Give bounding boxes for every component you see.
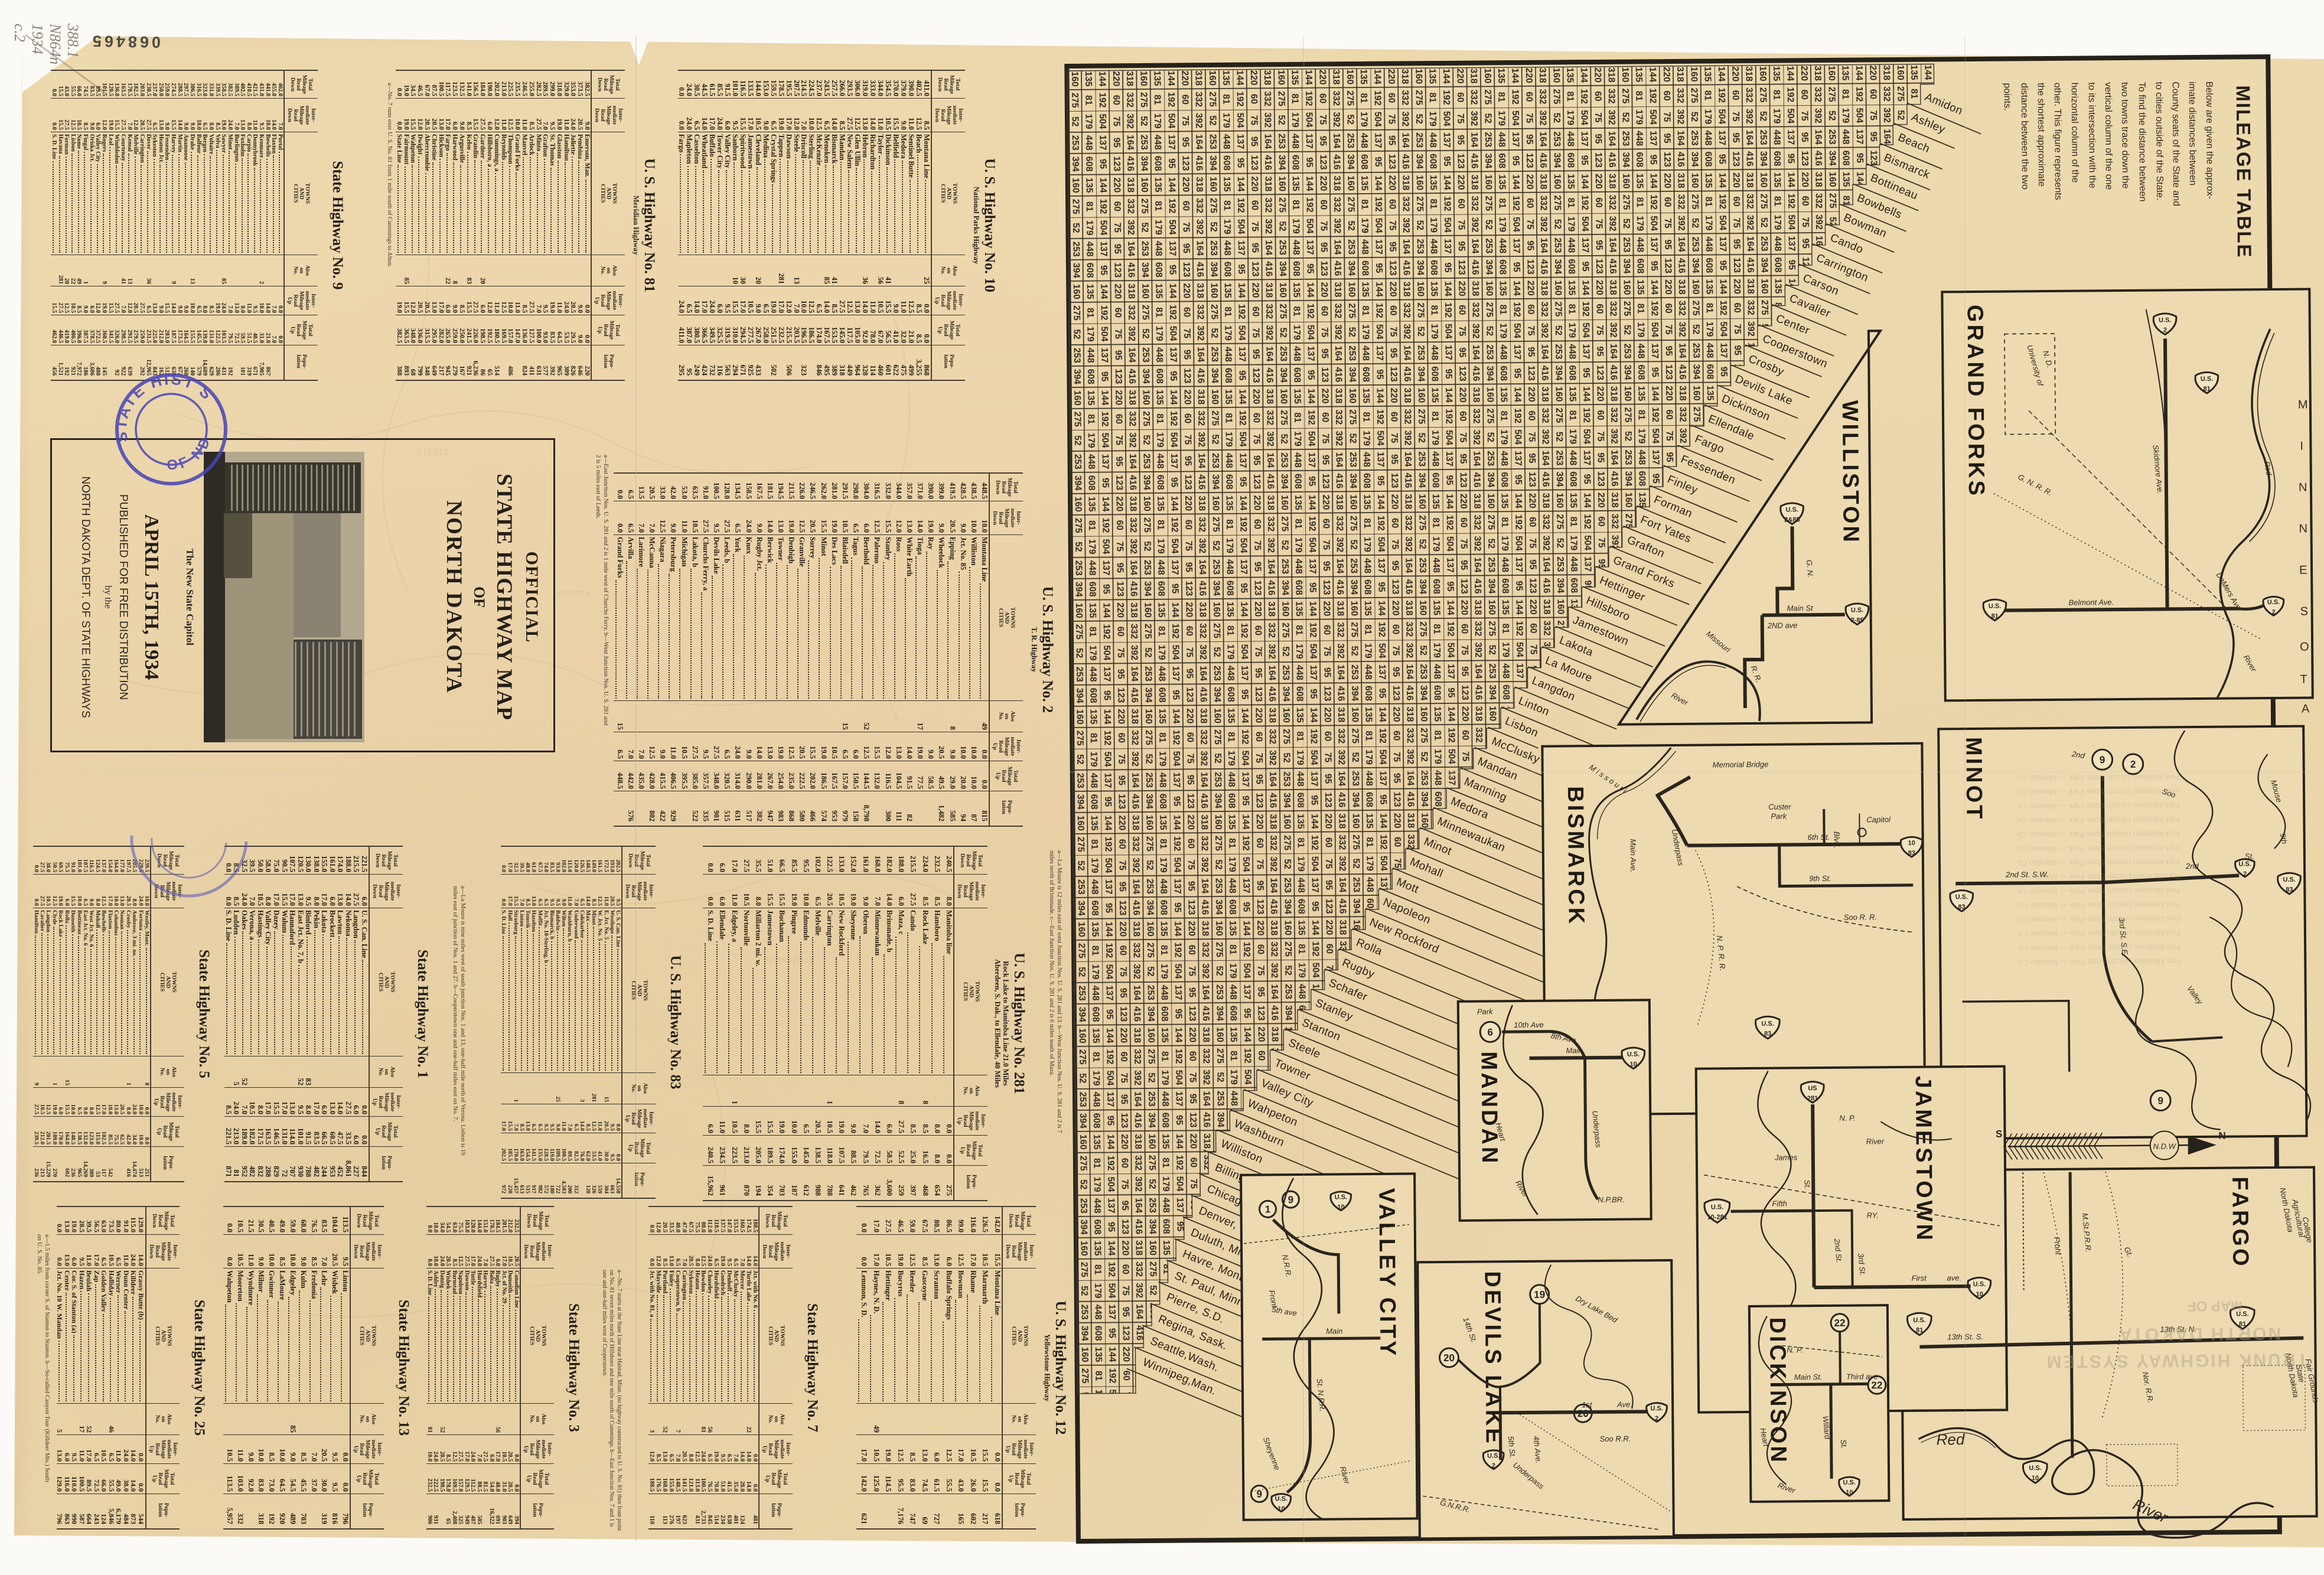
svg-text:U.S.: U.S. xyxy=(2283,876,2295,883)
svg-text:Fort Abraham Lincoln State Par: Fort Abraham Lincoln State Park — Mandan… xyxy=(2015,886,2180,896)
svg-text:to its intersection with the: to its intersection with the xyxy=(2087,82,2097,188)
svg-text:81: 81 xyxy=(1991,613,1999,620)
svg-text:20: 20 xyxy=(1443,1352,1455,1364)
svg-text:N. P.: N. P. xyxy=(1839,1114,1855,1123)
svg-text:N: N xyxy=(2218,1130,2225,1142)
svg-text:Soo R.R.: Soo R.R. xyxy=(1600,1434,1631,1443)
svg-text:M: M xyxy=(2298,399,2309,412)
svg-text:the shortest approximate: the shortest approximate xyxy=(2036,83,2046,187)
svg-text:6th St.: 6th St. xyxy=(1808,833,1830,842)
svg-text:TRUNK HIGHWAY SYSTEM: TRUNK HIGHWAY SYSTEM xyxy=(2045,1350,2307,1371)
svg-text:Fort Abraham Lincoln State Par: Fort Abraham Lincoln State Park — Mandan… xyxy=(2016,914,2180,924)
svg-text:U.S.: U.S. xyxy=(2029,1465,2041,1472)
svg-text:Front: Front xyxy=(2052,1237,2063,1256)
svg-text:I: I xyxy=(2300,440,2305,453)
svg-text:Fort Abraham Lincoln State Par: Fort Abraham Lincoln State Park — Mandan… xyxy=(2015,843,2180,853)
svg-text:9: 9 xyxy=(1288,1194,1294,1205)
svg-text:Main: Main xyxy=(1566,1046,1582,1055)
svg-text:Minot: Minot xyxy=(1422,836,1453,858)
svg-text:Fort Abraham Lincoln State Par: Fort Abraham Lincoln State Park — Mandan… xyxy=(2015,829,2180,839)
svg-text:Amidon: Amidon xyxy=(1923,91,1964,118)
svg-text:to cities outside of the State: to cities outside of the State. xyxy=(2154,81,2165,200)
svg-text:Fort Abraham Lincoln State Par: Fort Abraham Lincoln State Park — Mandan… xyxy=(2016,943,2180,953)
svg-text:U.S.: U.S. xyxy=(1761,1020,1774,1028)
svg-text:6: 6 xyxy=(1487,1026,1493,1038)
svg-text:St.: St. xyxy=(2245,852,2254,860)
svg-text:22: 22 xyxy=(1834,1318,1846,1329)
svg-text:horizontal column of the: horizontal column of the xyxy=(2069,83,2080,183)
svg-text:Main: Main xyxy=(1326,1326,1342,1335)
svg-text:N. P.: N. P. xyxy=(1787,1345,1803,1354)
svg-text:Fargo: Fargo xyxy=(1693,433,1726,456)
svg-text:River: River xyxy=(1866,1137,1885,1146)
svg-text:N.P.BR.: N.P.BR. xyxy=(1598,1195,1624,1204)
svg-text:Memorial Bridge: Memorial Bridge xyxy=(1713,760,1769,769)
svg-text:U.S.: U.S. xyxy=(2201,376,2213,383)
svg-text:U.S.: U.S. xyxy=(1335,1194,1347,1201)
svg-text:Schafer: Schafer xyxy=(1327,977,1370,1004)
svg-text:U.S.: U.S. xyxy=(1843,1479,1856,1486)
svg-text:Blvd.: Blvd. xyxy=(1833,831,1841,849)
svg-text:First: First xyxy=(1911,1274,1927,1283)
svg-text:N: N xyxy=(2299,481,2309,494)
svg-text:Napoleon: Napoleon xyxy=(1381,896,1433,927)
svg-text:N: N xyxy=(2299,523,2309,536)
svg-text:La Moure: La Moure xyxy=(1543,654,1594,685)
svg-text:2: 2 xyxy=(2163,327,2167,334)
svg-text:U.S.: U.S. xyxy=(1913,1317,1925,1324)
svg-text:81: 81 xyxy=(1916,1327,1923,1334)
svg-text:1st: 1st xyxy=(1582,1400,1593,1409)
svg-text:2: 2 xyxy=(2130,759,2136,770)
svg-text:2&85: 2&85 xyxy=(1784,516,1800,523)
svg-text:Williston: Williston xyxy=(1219,1137,1265,1166)
svg-text:James: James xyxy=(1774,1153,1798,1162)
svg-text:281: 281 xyxy=(1807,1095,1818,1102)
svg-text:Cavalier: Cavalier xyxy=(1788,292,1833,321)
svg-text:G. N.: G. N. xyxy=(1805,559,1815,578)
svg-text:Custer: Custer xyxy=(1768,802,1791,811)
svg-text:Fort Abraham Lincoln State Par: Fort Abraham Lincoln State Park — Mandan… xyxy=(2016,900,2180,910)
svg-text:83: 83 xyxy=(1764,1031,1771,1038)
svg-text:McClusky: McClusky xyxy=(1489,735,1541,767)
svg-text:U.S.: U.S. xyxy=(1989,603,2002,610)
svg-text:22: 22 xyxy=(1871,1380,1882,1391)
svg-text:MILEAGE TABLE: MILEAGE TABLE xyxy=(2232,85,2255,258)
svg-text:Fort Abraham Lincoln State Par: Fort Abraham Lincoln State Park — Mandan… xyxy=(2015,801,2179,811)
svg-text:Crosby: Crosby xyxy=(1746,353,1785,379)
svg-text:Bottineau: Bottineau xyxy=(1869,172,1919,203)
svg-text:N.D.W: N.D.W xyxy=(2153,1142,2177,1150)
svg-text:S: S xyxy=(1996,1129,2002,1140)
svg-text:10: 10 xyxy=(1629,1061,1637,1068)
svg-text:MANDAN: MANDAN xyxy=(1476,1051,1502,1165)
svg-text:O: O xyxy=(2300,640,2310,653)
svg-text:Third ave: Third ave xyxy=(1846,1372,1878,1381)
svg-text:9: 9 xyxy=(2100,754,2105,765)
svg-text:U.S.: U.S. xyxy=(1973,1281,1986,1288)
svg-text:E: E xyxy=(2299,564,2309,577)
svg-text:Hettinger: Hettinger xyxy=(1598,574,1647,604)
svg-text:83: 83 xyxy=(2286,886,2293,894)
svg-text:U.S.: U.S. xyxy=(1627,1051,1640,1058)
svg-text:10: 10 xyxy=(1337,1204,1344,1211)
svg-text:10-281: 10-281 xyxy=(1707,1214,1727,1221)
svg-text:9th St.: 9th St. xyxy=(1809,874,1831,883)
svg-text:Finley: Finley xyxy=(1665,473,1700,497)
svg-text:2: 2 xyxy=(2243,870,2247,878)
svg-text:BISMARCK: BISMARCK xyxy=(1563,786,1589,926)
svg-text:Fort Abraham Lincoln State Par: Fort Abraham Lincoln State Park — Mandan… xyxy=(2015,872,2180,882)
svg-text:Fort Abraham Lincoln State Par: Fort Abraham Lincoln State Park — Mandan… xyxy=(2015,787,2179,797)
svg-text:Langdon: Langdon xyxy=(1530,674,1577,703)
svg-text:Stanton: Stanton xyxy=(1300,1016,1342,1044)
svg-text:Fort Abraham Lincoln State Par: Fort Abraham Lincoln State Park — Mandan… xyxy=(2015,815,2179,825)
svg-text:Fifth: Fifth xyxy=(1772,1199,1787,1208)
svg-text:2ND ave: 2ND ave xyxy=(1767,621,1798,630)
svg-text:Park: Park xyxy=(1477,1007,1494,1016)
svg-text:2: 2 xyxy=(2272,609,2276,616)
svg-text:Ellendale: Ellendale xyxy=(1706,413,1756,443)
svg-text:Fort Abraham Lincoln State Par: Fort Abraham Lincoln State Park — Mandan… xyxy=(2016,957,2180,967)
svg-text:OF ND: OF ND xyxy=(158,428,221,480)
svg-text:81: 81 xyxy=(2204,386,2211,393)
svg-text:JAMESTOWN: JAMESTOWN xyxy=(1911,1076,1937,1243)
svg-text:2: 2 xyxy=(1655,1415,1658,1422)
svg-text:2: 2 xyxy=(1492,1462,1495,1469)
svg-text:A: A xyxy=(2302,702,2311,715)
svg-text:Stanley: Stanley xyxy=(1313,997,1355,1023)
svg-text:Fort Abraham Lincoln State Par: Fort Abraham Lincoln State Park — Mandan… xyxy=(2015,857,2180,868)
svg-text:Below are given the approx-: Below are given the approx- xyxy=(2204,81,2215,199)
svg-text:U.S.: U.S. xyxy=(2159,317,2171,324)
svg-text:Fort Abraham Lincoln State Par: Fort Abraham Lincoln State Park — Mandan… xyxy=(2016,928,2180,938)
svg-text:ave.: ave. xyxy=(1947,1273,1961,1282)
svg-text:10: 10 xyxy=(1277,1505,1285,1512)
svg-text:U.S.: U.S. xyxy=(2267,599,2280,606)
svg-text:US: US xyxy=(1808,1085,1817,1092)
svg-text:T: T xyxy=(2300,673,2308,686)
svg-text:U.S.: U.S. xyxy=(2238,860,2251,868)
svg-text:2nd: 2nd xyxy=(2185,862,2199,870)
svg-text:Capitol: Capitol xyxy=(1866,815,1891,824)
svg-text:U.S.: U.S. xyxy=(1711,1204,1723,1211)
svg-text:U.S.: U.S. xyxy=(1487,1452,1500,1459)
svg-text:Bismarck: Bismarck xyxy=(1882,151,1932,181)
svg-text:U.S.: U.S. xyxy=(1650,1405,1663,1412)
svg-text:U.S.: U.S. xyxy=(1851,606,1863,614)
svg-text:Red: Red xyxy=(1937,1430,1966,1448)
svg-text:Carson: Carson xyxy=(1801,272,1840,298)
svg-text:two towns trace down the: two towns trace down the xyxy=(2120,82,2130,189)
svg-text:Belmont Ave.: Belmont Ave. xyxy=(2068,598,2114,607)
svg-text:10th Ave: 10th Ave xyxy=(1514,1020,1544,1029)
svg-text:1: 1 xyxy=(1265,1204,1271,1215)
svg-text:FARGO: FARGO xyxy=(2227,1176,2253,1268)
svg-text:VALLEY CITY: VALLEY CITY xyxy=(1374,1188,1400,1358)
svg-text:83: 83 xyxy=(1908,850,1915,857)
svg-text:St.: St. xyxy=(1839,1439,1849,1449)
svg-text:Ave.: Ave. xyxy=(1616,1400,1632,1409)
svg-text:Bowman: Bowman xyxy=(1841,211,1888,240)
svg-text:Linton: Linton xyxy=(1517,694,1551,718)
svg-text:Towner: Towner xyxy=(1273,1057,1313,1083)
svg-text:9: 9 xyxy=(2157,1095,2163,1106)
svg-text:10: 10 xyxy=(1908,840,1915,847)
svg-text:Mandan: Mandan xyxy=(1476,755,1520,783)
svg-text:other. This figure represents: other. This figure represents xyxy=(2052,83,2064,200)
svg-text:Grafton: Grafton xyxy=(1625,534,1667,560)
svg-text:RY.: RY. xyxy=(1867,1211,1879,1219)
svg-text:points.: points. xyxy=(2002,83,2012,110)
svg-text:NORTH DAKOTA: NORTH DAKOTA xyxy=(2117,1323,2281,1344)
svg-text:2-85: 2-85 xyxy=(1851,617,1864,624)
svg-text:MAP OF: MAP OF xyxy=(2188,1297,2242,1314)
svg-text:County seats of the State and: County seats of the State and xyxy=(2170,81,2182,206)
svg-text:Fort Abraham Lincoln State Par: Fort Abraham Lincoln State Park — Mandan… xyxy=(2015,772,2179,782)
svg-text:10: 10 xyxy=(1976,1291,1983,1298)
svg-text:Main St: Main St xyxy=(1787,604,1814,612)
svg-text:Park: Park xyxy=(1771,811,1787,820)
svg-text:Forman: Forman xyxy=(1652,493,1694,520)
svg-text:St.: St. xyxy=(1803,1179,1812,1189)
svg-text:Manning: Manning xyxy=(1462,775,1509,804)
svg-text:10: 10 xyxy=(1846,1489,1853,1496)
svg-text:To find the distance between: To find the distance between xyxy=(2137,82,2148,202)
svg-text:distance between the two: distance between the two xyxy=(2019,83,2030,190)
svg-text:imate distances between: imate distances between xyxy=(2187,81,2198,185)
svg-text:GRAND FORKS: GRAND FORKS xyxy=(1963,305,1989,498)
svg-text:19: 19 xyxy=(1534,1289,1545,1300)
svg-text:WILLISTON: WILLISTON xyxy=(1837,400,1863,544)
svg-text:S: S xyxy=(2300,605,2310,618)
svg-text:Medora: Medora xyxy=(1449,795,1490,821)
svg-text:vertical column of the one: vertical column of the one xyxy=(2103,82,2114,190)
svg-text:U.S.: U.S. xyxy=(1275,1495,1288,1502)
svg-text:Mott: Mott xyxy=(1394,876,1420,896)
svg-text:Soo R. R.: Soo R. R. xyxy=(1844,912,1877,921)
svg-text:DEVILS LAKE: DEVILS LAKE xyxy=(1479,1271,1505,1446)
svg-text:Hillsboro: Hillsboro xyxy=(1585,594,1632,623)
svg-text:Bowbells: Bowbells xyxy=(1855,192,1903,221)
svg-text:U.S.: U.S. xyxy=(1786,506,1798,513)
svg-text:10: 10 xyxy=(2032,1475,2039,1482)
svg-text:Main St.: Main St. xyxy=(1794,1372,1823,1381)
svg-text:Main Ave.: Main Ave. xyxy=(1629,839,1638,872)
